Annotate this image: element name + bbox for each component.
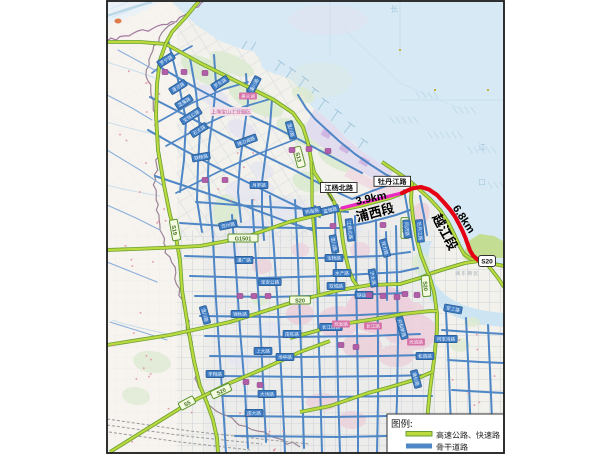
svg-text:S20: S20	[421, 281, 428, 291]
svg-text:S20: S20	[295, 298, 305, 304]
svg-text:G1501: G1501	[235, 236, 252, 242]
svg-text:S20: S20	[481, 259, 493, 266]
